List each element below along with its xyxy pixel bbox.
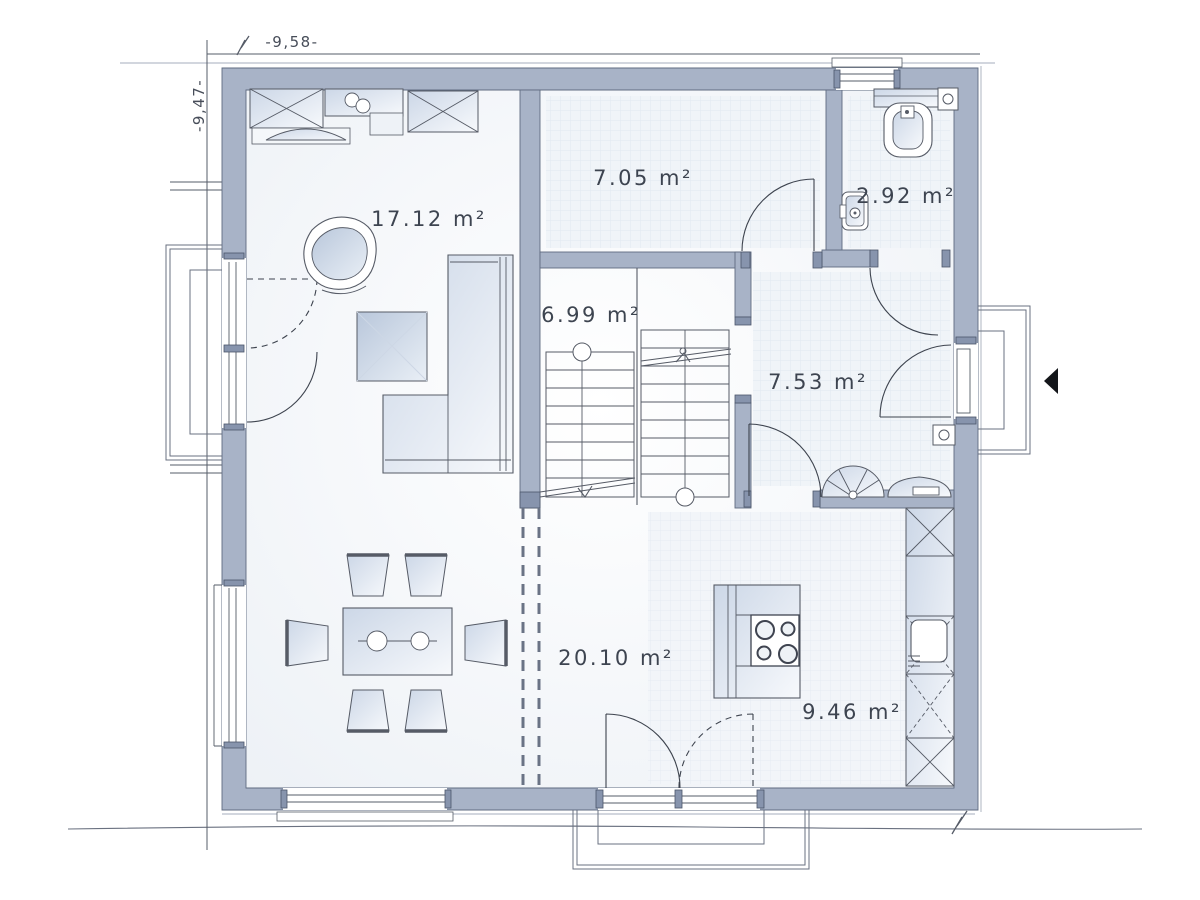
terrace-left-inner: [190, 270, 222, 434]
wall-wc-left: [826, 90, 842, 250]
sideboard-bowl: [356, 99, 370, 113]
window-post: [834, 70, 840, 88]
floor-plan-drawing: -9,58- -9,47-: [0, 0, 1200, 900]
washbasin-drain-dot: [854, 212, 857, 215]
wall-living-partition: [520, 90, 540, 508]
door-post: [744, 491, 751, 507]
door-post: [224, 424, 244, 430]
window-post: [894, 70, 900, 88]
wall-stair-top: [540, 252, 750, 268]
sideboard-return: [370, 113, 403, 135]
height-dimension-label: -9,47-: [190, 79, 208, 132]
living-room-area-label: 17.12 m²: [371, 207, 487, 231]
door-post: [870, 250, 878, 267]
entrance-arrow-icon: [1044, 368, 1058, 394]
table-bowl: [367, 631, 387, 651]
door-post: [224, 345, 244, 352]
porch-right-inner: [978, 331, 1004, 429]
wall-end-post: [520, 492, 540, 508]
wc-area-label: 2.92 m²: [856, 184, 956, 208]
stair-newel-top: [573, 343, 591, 361]
door-post: [956, 417, 976, 424]
burner: [779, 645, 797, 663]
utility-room-area-label: 7.05 m²: [593, 166, 693, 190]
window-post: [224, 742, 244, 748]
toilet-flush-dot: [905, 110, 909, 114]
living-dining-area-label: 20.10 m²: [558, 646, 674, 670]
vent-circle: [943, 94, 953, 104]
ground-line: [68, 826, 1142, 829]
burner: [782, 623, 795, 636]
window-post: [445, 790, 451, 808]
burner: [758, 647, 771, 660]
burner: [756, 621, 774, 639]
door-post: [735, 395, 751, 403]
chair: [287, 620, 328, 666]
coat-rack-hub: [849, 491, 857, 499]
chair: [347, 555, 389, 596]
vent-circle: [939, 430, 949, 440]
wall-wc-bottom: [822, 250, 870, 267]
chair: [465, 620, 506, 666]
chair: [347, 690, 389, 731]
door-post: [813, 252, 822, 268]
door-post: [942, 250, 950, 267]
wc-window-sill: [832, 58, 902, 67]
wc-window-opening: [836, 68, 898, 90]
washbasin-tap: [840, 205, 846, 218]
door-post: [757, 790, 764, 808]
table-bowl: [411, 632, 429, 650]
door-post: [813, 491, 820, 507]
terrace-left-outline: [166, 245, 222, 460]
window-post: [224, 580, 244, 586]
chair: [405, 555, 447, 596]
break-symbol-top: [237, 36, 249, 55]
dining-table: [343, 608, 452, 675]
front-door-slab: [957, 349, 970, 413]
door-post: [956, 337, 976, 344]
door-post: [224, 253, 244, 259]
door-post: [675, 790, 682, 808]
left-window-opening: [222, 585, 246, 746]
bottom-window-opening: [283, 788, 447, 810]
width-dimension-label: -9,58-: [265, 33, 318, 51]
door-post: [596, 790, 603, 808]
steps-bottom-outline: [573, 810, 809, 869]
console-tray: [913, 487, 939, 495]
kitchen-area-label: 9.46 m²: [802, 700, 902, 724]
hallway-area-label: 7.53 m²: [768, 370, 868, 394]
door-post: [741, 252, 750, 268]
stairwell-area-label: 6.99 m²: [541, 303, 641, 327]
chair: [405, 690, 447, 731]
door-post: [735, 317, 751, 325]
window-post: [281, 790, 287, 808]
floor-plan-page: -9,58- -9,47-: [0, 0, 1200, 900]
bottom-window-sill: [277, 812, 453, 821]
terrace-door-opening: [222, 258, 246, 428]
stair-newel-bottom: [676, 488, 694, 506]
